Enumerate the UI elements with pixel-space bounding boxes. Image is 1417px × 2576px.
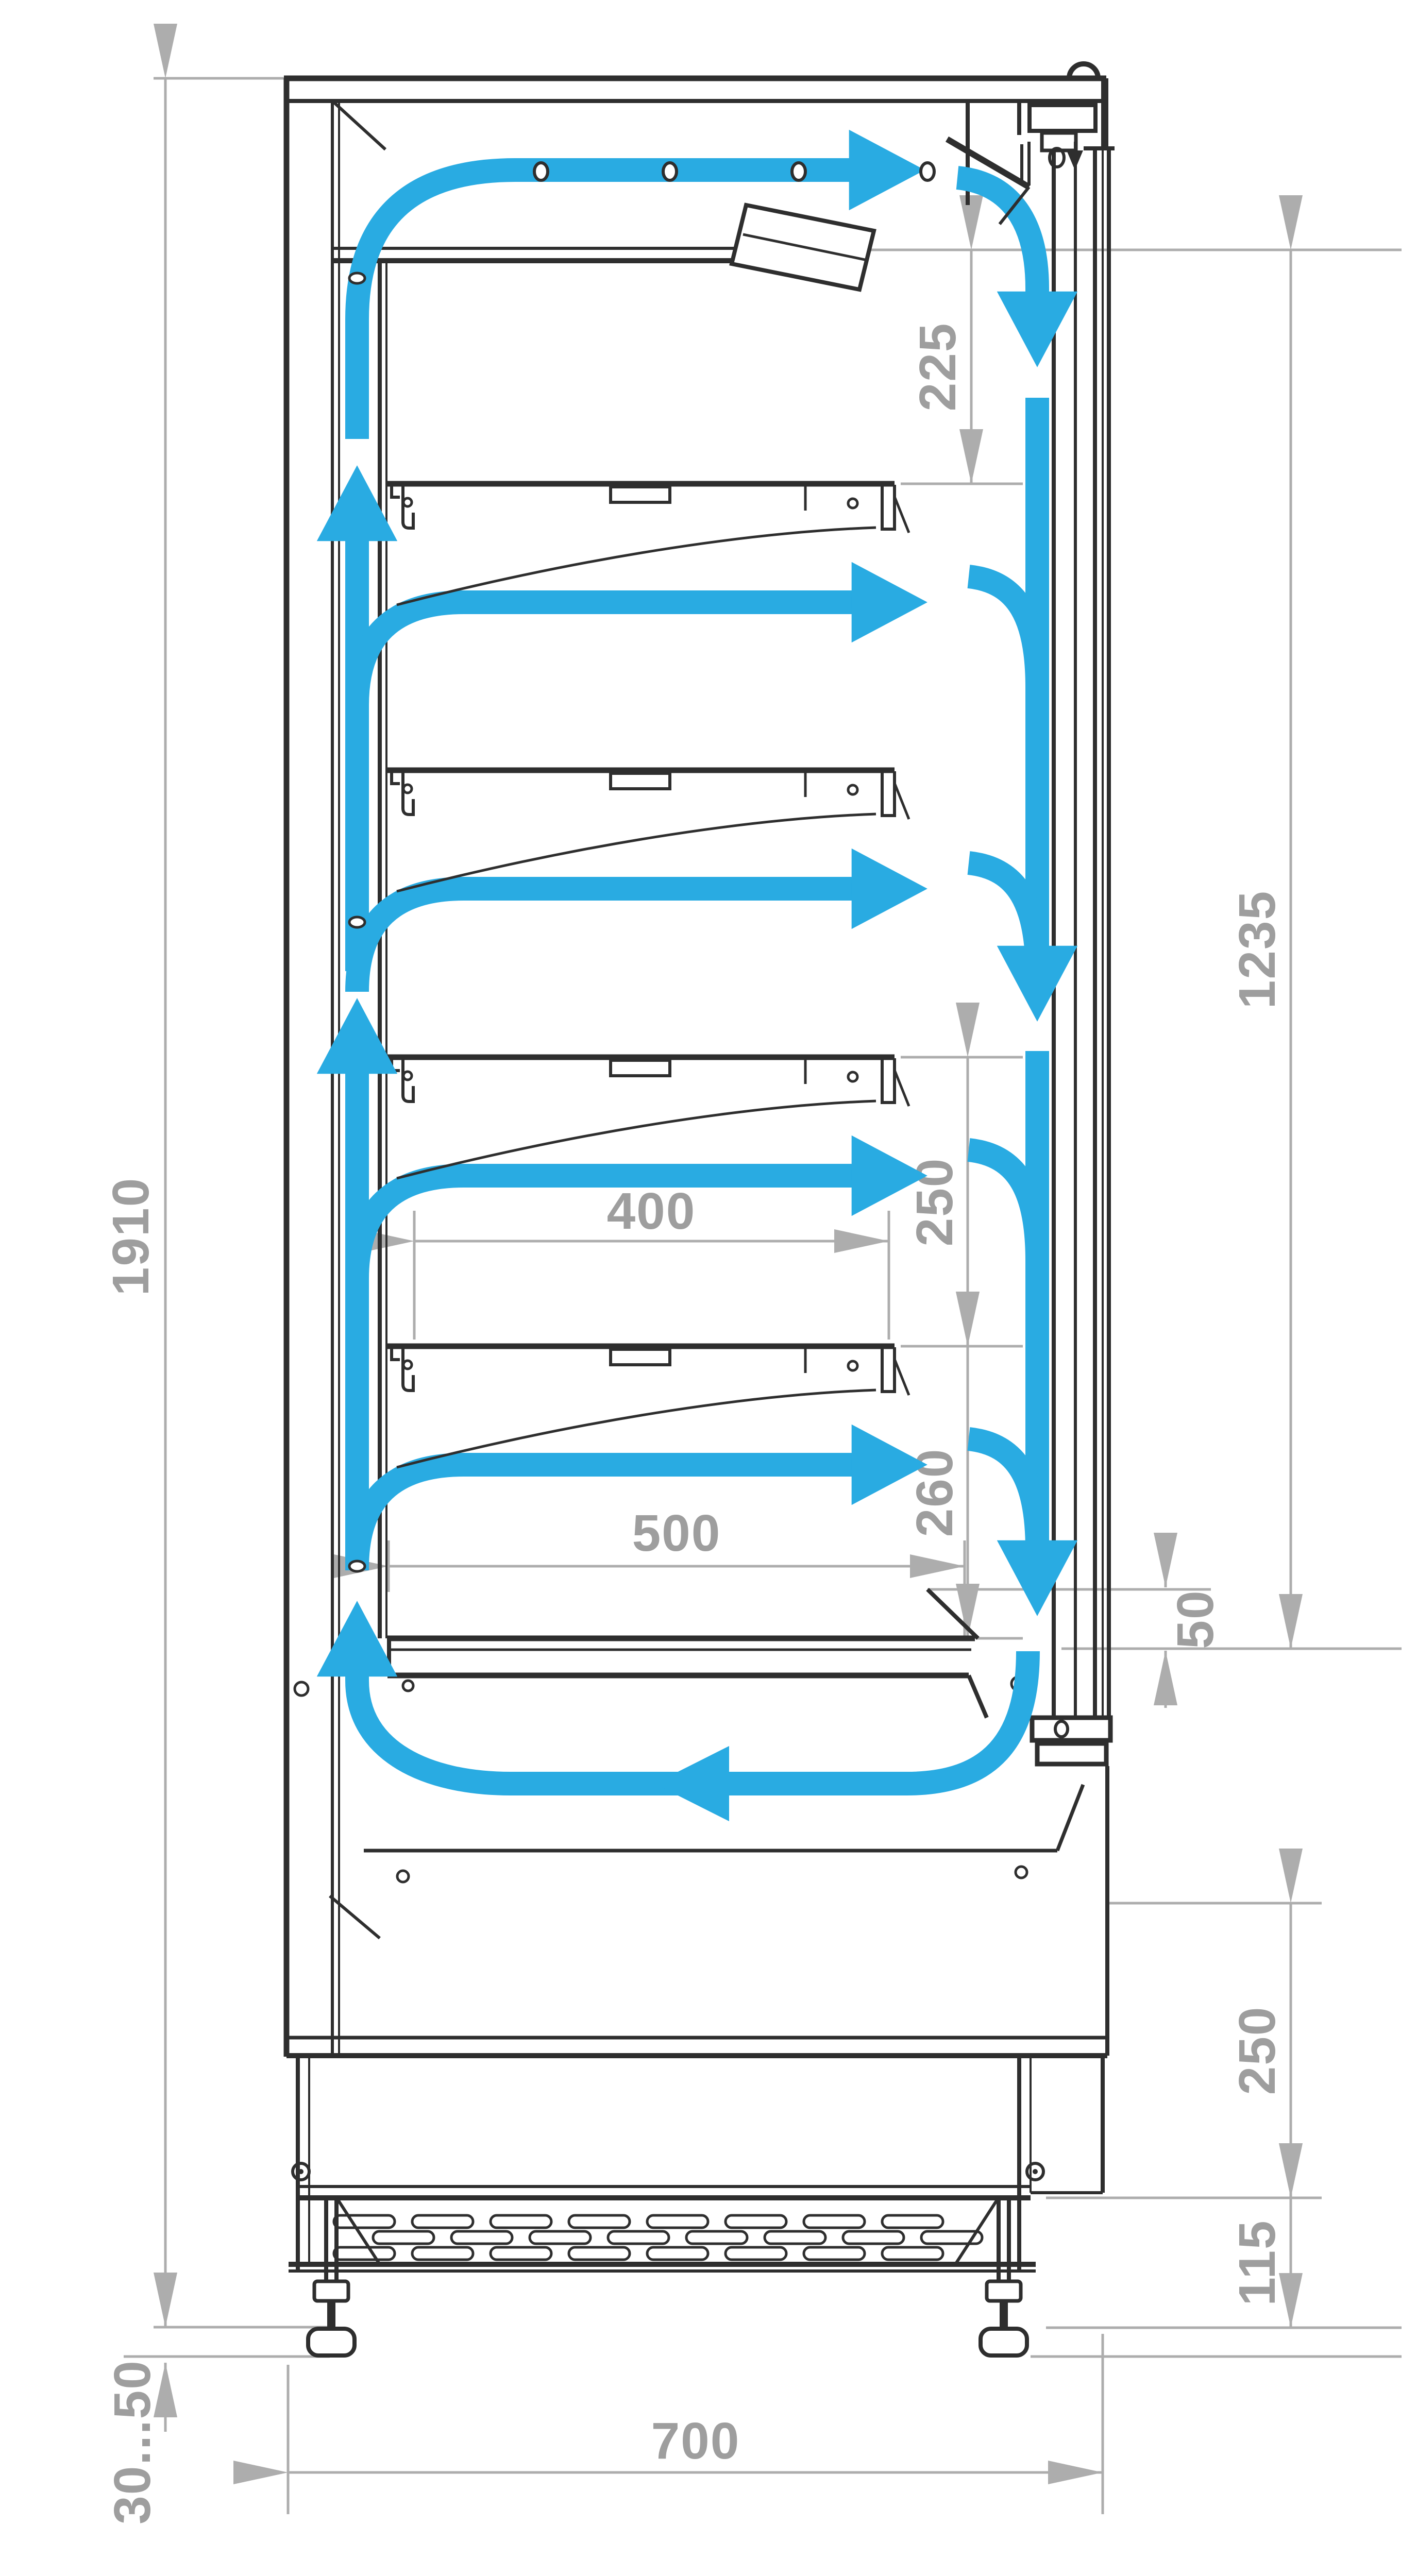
vent-slot [451,2231,512,2244]
return-plenum [286,1677,1107,2056]
dim-label-foot-adjustment: 30...50 [104,2360,161,2524]
back-panel [380,261,386,1638]
top-cap [284,78,1106,149]
airflow-return-arrow [357,1651,1028,1784]
shelf-4 [387,1346,909,1395]
dim-base-vent-height: 115 [1031,2198,1402,2357]
airflow-shelf-arrow-2 [357,889,853,992]
vent-grille [334,2215,982,2260]
dim-label-base-vent-height: 115 [1228,2219,1286,2306]
vent-slot [491,2247,551,2260]
dim-base-front-height: 250 [1046,1903,1322,2198]
vent-slot [569,2215,630,2228]
vent-slot [412,2215,473,2228]
dim-air-curtain-drop: 1235 [1061,250,1402,1649]
door-bottom-frame [1032,1718,1110,2056]
vent-slot [412,2247,473,2260]
vent-slot [804,2215,865,2228]
technical-drawing: 1910 30...50 225 1235 250 [0,0,1417,2576]
airflow-return-arrowhead [654,1746,729,1821]
dim-foot-adjustment: 30...50 [104,2357,330,2524]
foot-left [308,2198,379,2355]
vent-slot [686,2231,747,2244]
dim-overall-height: 1910 [102,78,330,2327]
vent-slot [726,2247,786,2260]
dim-label-shelf-spacing-upper: 250 [906,1158,964,1247]
dim-canopy-to-first-shelf: 225 [871,250,1402,484]
vent-slot [491,2215,551,2228]
dim-overall-depth: 700 [288,2334,1103,2514]
glass-door [1054,142,1109,1716]
vent-slot [334,2215,395,2228]
airflow-shelf-arrow-4 [357,1465,853,1568]
shelf-wires [397,528,876,1467]
dim-label-shelf-depth: 400 [607,1182,696,1240]
page: 1910 30...50 225 1235 250 [0,0,1417,2576]
dim-label-last-shelf-to-deck: 260 [906,1448,964,1537]
foot-right [956,2198,1027,2355]
vent-slot [569,2247,630,2260]
vent-slot [843,2231,904,2244]
light-fixture [732,205,874,290]
shelf-3 [387,1057,909,1106]
vent-slot [882,2247,943,2260]
left-wall [286,78,385,2057]
dim-label-air-curtain-drop: 1235 [1228,890,1286,1009]
airflow [357,170,1037,1821]
base-compartment [289,2056,1103,2271]
vent-slot [804,2247,865,2260]
vent-slot [647,2215,708,2228]
dim-label-deck-depth: 500 [632,1504,721,1562]
airflow-shelf-arrow-3 [357,1176,853,1279]
dim-label-overall-height: 1910 [102,1177,160,1296]
dim-label-canopy-to-first-shelf: 225 [909,323,967,412]
vent-slot [882,2215,943,2228]
dim-label-overall-depth: 700 [651,2412,740,2470]
dim-label-base-front-height: 250 [1228,2006,1286,2095]
deck [387,1638,987,1718]
vent-slot [530,2231,591,2244]
vent-slot [334,2247,395,2260]
vent-slot [647,2247,708,2260]
cabinet-structure [284,64,1115,2355]
vent-slot [608,2231,669,2244]
vent-slot [726,2215,786,2228]
vent-slot [765,2231,825,2244]
dim-shelf-depth: 400 [414,1182,889,1340]
duct-holes [349,163,934,1571]
shelf-1 [387,484,909,533]
dim-shelf-spacing-upper: 250 [901,1057,1023,1346]
vent-slot [373,2231,434,2244]
dim-label-outlet-gap: 50 [1167,1589,1224,1649]
airflow-shelf-arrow-1 [357,602,853,705]
shelf-2 [387,770,909,819]
dim-deck-depth: 500 [389,1504,965,1638]
